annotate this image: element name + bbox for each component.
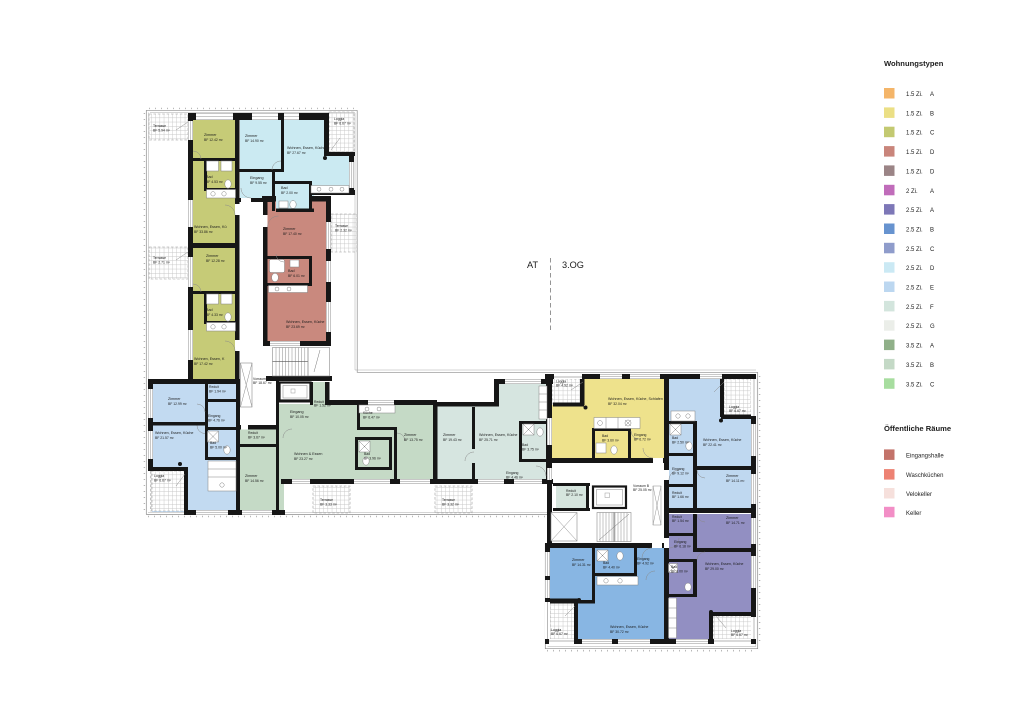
svg-text:BF 1.94 m²: BF 1.94 m² <box>209 390 227 394</box>
svg-text:Zimmer: Zimmer <box>726 474 739 478</box>
svg-text:Bad: Bad <box>671 565 677 569</box>
svg-text:BF 3.33 m²: BF 3.33 m² <box>320 503 338 507</box>
svg-text:A: A <box>930 344 934 350</box>
svg-text:3.5 Zi.: 3.5 Zi. <box>906 344 923 350</box>
svg-text:2.5 Zi.: 2.5 Zi. <box>906 305 923 311</box>
svg-text:2.5 Zi.: 2.5 Zi. <box>906 228 923 234</box>
svg-text:Eingang: Eingang <box>634 433 647 437</box>
svg-text:2.5 Zi.: 2.5 Zi. <box>906 286 923 292</box>
svg-text:Bad: Bad <box>672 436 678 440</box>
svg-text:BF 2.10 m²: BF 2.10 m² <box>566 493 584 497</box>
svg-text:Zimmer: Zimmer <box>206 254 219 258</box>
svg-text:BF 2.71 m²: BF 2.71 m² <box>153 261 171 265</box>
svg-text:BF 12.42 m²: BF 12.42 m² <box>204 138 224 142</box>
svg-text:Zimmer: Zimmer <box>245 474 258 478</box>
svg-text:Reduit: Reduit <box>209 385 219 389</box>
svg-text:Wohnen, Essen, K: Wohnen, Essen, K <box>194 357 225 361</box>
svg-text:BF 1.52 m²: BF 1.52 m² <box>314 404 332 408</box>
svg-text:BF 3.75 m²: BF 3.75 m² <box>522 448 540 452</box>
svg-text:BF 3.00 m²: BF 3.00 m² <box>671 570 689 574</box>
svg-text:Wohnen, Essen, Küche: Wohnen, Essen, Küche <box>479 433 517 437</box>
svg-text:D: D <box>930 150 935 156</box>
svg-text:BF 4.33 m²: BF 4.33 m² <box>206 313 224 317</box>
svg-text:BF 18.67 m²: BF 18.67 m² <box>253 381 273 385</box>
svg-text:BF 6.67 m²: BF 6.67 m² <box>154 479 172 483</box>
svg-text:2 Zi.: 2 Zi. <box>906 189 918 195</box>
svg-text:BF 3.96 m²: BF 3.96 m² <box>364 457 382 461</box>
svg-text:BF 23.27 m²: BF 23.27 m² <box>294 457 314 461</box>
svg-text:BF 6.47 m²: BF 6.47 m² <box>363 416 381 420</box>
svg-text:Wohnen & Essen: Wohnen & Essen <box>294 452 322 456</box>
svg-text:BF 25.71 m²: BF 25.71 m² <box>479 438 499 442</box>
svg-text:Bad: Bad <box>210 441 216 445</box>
svg-text:Bad: Bad <box>602 434 608 438</box>
svg-text:C: C <box>930 382 935 388</box>
svg-text:Wohnen, Essen, Küche: Wohnen, Essen, Küche <box>286 320 324 324</box>
svg-text:BF 4.46 m²: BF 4.46 m² <box>506 476 524 480</box>
svg-text:BF 14.90 m²: BF 14.90 m² <box>245 139 265 143</box>
svg-text:Eingang: Eingang <box>672 467 685 471</box>
svg-text:Wohnen, Essen, Küche: Wohnen, Essen, Küche <box>155 431 193 435</box>
svg-text:B: B <box>930 363 934 369</box>
svg-text:BF 13.75 m²: BF 13.75 m² <box>404 438 424 442</box>
svg-text:Velokeller: Velokeller <box>906 492 932 498</box>
svg-text:BF 14.31 m²: BF 14.31 m² <box>572 563 592 567</box>
svg-text:BF 3.67 m²: BF 3.67 m² <box>248 436 266 440</box>
svg-text:3.5 Zi.: 3.5 Zi. <box>906 363 923 369</box>
svg-text:BF 9.55 m²: BF 9.55 m² <box>250 181 268 185</box>
svg-text:2.5 Zi.: 2.5 Zi. <box>906 208 923 214</box>
svg-text:Bad: Bad <box>281 186 288 190</box>
svg-text:BF 30.72 m²: BF 30.72 m² <box>610 630 630 634</box>
svg-text:BF 12.99 m²: BF 12.99 m² <box>168 402 188 406</box>
svg-text:BF 6.67 m²: BF 6.67 m² <box>551 632 569 636</box>
svg-text:BF 33.86 m²: BF 33.86 m² <box>194 230 214 234</box>
svg-text:BF 6.18 m²: BF 6.18 m² <box>674 545 692 549</box>
svg-text:Eingang: Eingang <box>250 176 264 180</box>
svg-text:Reduit: Reduit <box>248 431 258 435</box>
svg-text:Eingang: Eingang <box>674 540 687 544</box>
svg-text:Zimmer: Zimmer <box>283 227 296 231</box>
svg-text:BF 12.28 m²: BF 12.28 m² <box>206 259 226 263</box>
svg-text:G: G <box>930 324 935 330</box>
svg-text:BF 1.54 m²: BF 1.54 m² <box>672 519 690 523</box>
svg-text:Wohnen, Essen, Küche: Wohnen, Essen, Küche <box>610 625 648 629</box>
svg-text:Bad: Bad <box>206 308 213 312</box>
svg-text:BF 4.76 m²: BF 4.76 m² <box>208 419 226 423</box>
svg-text:BF 2.00 m²: BF 2.00 m² <box>281 191 299 195</box>
svg-text:A: A <box>930 189 934 195</box>
svg-text:BF 9.12 m²: BF 9.12 m² <box>672 472 690 476</box>
svg-text:C: C <box>930 131 935 137</box>
svg-text:Zimmer: Zimmer <box>443 433 456 437</box>
svg-text:Terrasse: Terrasse <box>320 498 333 502</box>
svg-text:D: D <box>930 266 935 272</box>
svg-text:Eingang: Eingang <box>208 414 221 418</box>
svg-text:BF 32.04 m²: BF 32.04 m² <box>608 402 628 406</box>
svg-text:Zimmer: Zimmer <box>168 397 181 401</box>
svg-text:BF 3.60 m²: BF 3.60 m² <box>602 439 620 443</box>
svg-text:3.5 Zi.: 3.5 Zi. <box>906 382 923 388</box>
svg-text:Öffentliche Räume: Öffentliche Räume <box>884 424 951 433</box>
svg-text:Terrasse: Terrasse <box>442 498 455 502</box>
svg-text:BF 10.05 m²: BF 10.05 m² <box>290 415 310 419</box>
svg-text:Eingang: Eingang <box>506 471 519 475</box>
svg-text:2.5 Zi.: 2.5 Zi. <box>906 266 923 272</box>
svg-text:BF 19.43 m²: BF 19.43 m² <box>443 438 463 442</box>
svg-text:Bad: Bad <box>522 443 528 447</box>
svg-text:Wohnungstypen: Wohnungstypen <box>884 59 944 68</box>
svg-text:BF 6.67 m²: BF 6.67 m² <box>729 409 747 413</box>
svg-text:Eingangshalle: Eingangshalle <box>906 453 944 459</box>
svg-text:BF 2.50 m²: BF 2.50 m² <box>672 441 690 445</box>
svg-text:Bad: Bad <box>603 561 609 565</box>
svg-text:BF 17.40 m²: BF 17.40 m² <box>283 232 303 236</box>
svg-text:BF 14.56 m²: BF 14.56 m² <box>245 479 265 483</box>
svg-text:Loggia: Loggia <box>154 474 164 478</box>
svg-text:Zimmer: Zimmer <box>572 558 585 562</box>
svg-text:Wohnen, Essen, Küche: Wohnen, Essen, Küche <box>287 146 325 150</box>
svg-text:BF 6.67 m²: BF 6.67 m² <box>334 122 352 126</box>
svg-text:Loggia: Loggia <box>334 117 344 121</box>
svg-text:Terrasse: Terrasse <box>153 124 166 128</box>
svg-text:BF 2.32 m²: BF 2.32 m² <box>335 229 353 233</box>
svg-text:BF 1.66 m²: BF 1.66 m² <box>672 495 690 499</box>
svg-text:1.5 Zi.: 1.5 Zi. <box>906 150 923 156</box>
svg-text:BF 23.69 m²: BF 23.69 m² <box>286 325 306 329</box>
svg-text:Zimmer: Zimmer <box>726 516 739 520</box>
svg-text:2.5 Zi.: 2.5 Zi. <box>906 324 923 330</box>
svg-text:AT: AT <box>527 260 538 270</box>
svg-text:BF 4.53 m²: BF 4.53 m² <box>206 180 224 184</box>
svg-text:Eingang: Eingang <box>637 557 650 561</box>
svg-text:BF 4.92 m²: BF 4.92 m² <box>556 384 574 388</box>
svg-text:Zimmer: Zimmer <box>204 133 217 137</box>
svg-text:B: B <box>930 111 934 117</box>
svg-text:A: A <box>930 208 934 214</box>
svg-text:Bad: Bad <box>364 452 370 456</box>
svg-text:A: A <box>930 92 934 98</box>
svg-text:BF 6.01 m²: BF 6.01 m² <box>288 274 306 278</box>
svg-text:Keller: Keller <box>906 511 921 517</box>
svg-text:BF 3.32 m²: BF 3.32 m² <box>442 503 460 507</box>
svg-text:BF 27.67 m²: BF 27.67 m² <box>287 151 307 155</box>
svg-text:BF 17.42 m²: BF 17.42 m² <box>194 362 214 366</box>
svg-text:B: B <box>930 228 934 234</box>
svg-text:Küche: Küche <box>363 411 373 415</box>
svg-text:BF 5.94 m²: BF 5.94 m² <box>153 129 171 133</box>
svg-text:1.5 Zi.: 1.5 Zi. <box>906 169 923 175</box>
svg-text:Bad: Bad <box>206 175 213 179</box>
svg-text:F: F <box>930 305 934 311</box>
svg-text:Wohnen, Essen, Küche, Schlafen: Wohnen, Essen, Küche, Schlafen <box>608 397 663 401</box>
svg-text:Wohnen, Essen, Küche: Wohnen, Essen, Küche <box>705 562 743 566</box>
svg-text:Zimmer: Zimmer <box>404 433 417 437</box>
svg-text:1.5 Zi.: 1.5 Zi. <box>906 131 923 137</box>
svg-text:BF 29.00 m²: BF 29.00 m² <box>705 567 725 571</box>
svg-text:1.5 Zi.: 1.5 Zi. <box>906 92 923 98</box>
svg-text:Eingang: Eingang <box>290 410 304 414</box>
svg-text:Wohnen, Essen, Küche: Wohnen, Essen, Küche <box>703 438 741 442</box>
svg-text:Bad: Bad <box>288 269 295 273</box>
svg-text:E: E <box>930 286 934 292</box>
svg-text:3.OG: 3.OG <box>562 260 584 270</box>
svg-text:Wohnen, Essen, Kü: Wohnen, Essen, Kü <box>194 225 227 229</box>
svg-text:BF 25.05 m²: BF 25.05 m² <box>633 488 653 492</box>
svg-text:BF 22.41 m²: BF 22.41 m² <box>703 443 723 447</box>
svg-text:BF 21.57 m²: BF 21.57 m² <box>155 436 175 440</box>
svg-text:BF 6.72 m²: BF 6.72 m² <box>634 438 652 442</box>
svg-text:C: C <box>930 247 935 253</box>
svg-text:BF 5.00 m²: BF 5.00 m² <box>210 446 228 450</box>
svg-text:Waschküchen: Waschküchen <box>906 473 943 479</box>
svg-text:BF 4.40 m²: BF 4.40 m² <box>603 566 621 570</box>
svg-text:BF 14.71 m²: BF 14.71 m² <box>726 521 746 525</box>
svg-text:Terrasse: Terrasse <box>335 224 348 228</box>
svg-text:Terrasse: Terrasse <box>153 256 166 260</box>
svg-text:BF 6.67 m²: BF 6.67 m² <box>731 633 749 637</box>
svg-text:1.5 Zi.: 1.5 Zi. <box>906 111 923 117</box>
svg-text:D: D <box>930 169 935 175</box>
svg-text:BF 14.11 m²: BF 14.11 m² <box>726 479 745 483</box>
svg-text:BF 4.92 m²: BF 4.92 m² <box>637 562 655 566</box>
svg-text:2.5 Zi.: 2.5 Zi. <box>906 247 923 253</box>
svg-text:Zimmer: Zimmer <box>245 134 258 138</box>
